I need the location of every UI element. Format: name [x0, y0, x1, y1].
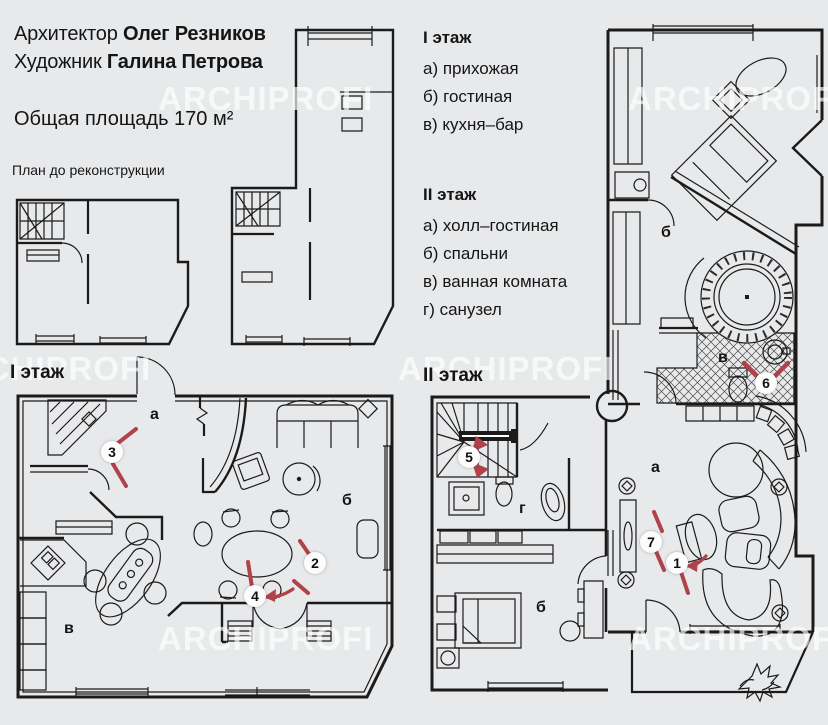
legend-floor1-item: б) гостиная [423, 83, 512, 111]
dining-table [222, 531, 292, 577]
marker-4: 4 [244, 585, 266, 607]
kitchen-corner-counter [20, 540, 86, 586]
marker-6: 6 [755, 372, 777, 394]
room-label-f2-hall: а [651, 459, 660, 477]
room-label-f1-hallway: а [150, 406, 159, 424]
credit-line-artist: Художник Галина Петрова [14, 48, 263, 76]
marker-3: 3 [101, 441, 123, 463]
curved-sofa [709, 443, 763, 497]
credit-architect-name: Олег Резников [123, 23, 266, 45]
legend-floor1-title: I этаж [423, 28, 471, 48]
legend-floor2-title: II этаж [423, 185, 476, 205]
watermark: ARCHIPROFI [628, 620, 828, 658]
wall-break-symbol [197, 408, 207, 424]
plan-floor1-title: I этаж [10, 362, 64, 384]
desk [584, 581, 603, 638]
tv-unit [620, 500, 636, 572]
column [597, 391, 627, 421]
room-label-f2-bedroom-top: б [661, 224, 671, 242]
room-label-f2-bedroom-bottom: б [536, 599, 546, 617]
room-label-f1-livingroom: б [342, 492, 352, 510]
armchair [232, 452, 270, 490]
watermark: ARCHIPROFI [158, 620, 373, 658]
bed [672, 116, 777, 221]
credit-architect-prefix: Архитектор [14, 23, 123, 45]
marker-1: 1 [666, 552, 688, 574]
small-plan-before-floor1 [17, 200, 188, 345]
tv-cabinet [357, 520, 378, 558]
marker-7: 7 [640, 531, 662, 553]
marker-2: 2 [304, 552, 326, 574]
watermark: ARCHIPROFI [628, 80, 828, 118]
sofa [277, 405, 358, 448]
room-label-f2-wc: г [519, 500, 526, 518]
bidet [537, 481, 568, 523]
floorplan-page: ARCHIPROFI ARCHIPROFI ARCHIPROFI ARCHIPR… [0, 0, 828, 725]
legend-floor2-item: г) санузел [423, 296, 502, 324]
toilet [496, 477, 513, 484]
before-reconstruction-label: План до реконструкции [12, 162, 165, 178]
legend-floor2-item: а) холл–гостиная [423, 212, 559, 240]
legend-floor2-item: в) ванная комната [423, 268, 567, 296]
bar-counter [83, 528, 173, 628]
legend-floor2-item: б) спальни [423, 240, 508, 268]
legend-floor1-item: в) кухня–бар [423, 111, 523, 139]
marker-5: 5 [458, 446, 480, 468]
plan-floor2-title: II этаж [423, 365, 482, 387]
credit-artist-name: Галина Петрова [107, 51, 263, 73]
credit-line-architect: Архитектор Олег Резников [14, 20, 266, 48]
tiled-floor [657, 333, 794, 403]
bed [455, 593, 521, 648]
credit-artist-prefix: Художник [14, 51, 107, 73]
legend-floor1-item: а) прихожая [423, 55, 519, 83]
room-label-f1-kitchen: в [64, 620, 74, 638]
room-label-f2-bathroom: в [718, 349, 728, 367]
total-area-text: Общая площадь 170 м² [14, 108, 233, 131]
